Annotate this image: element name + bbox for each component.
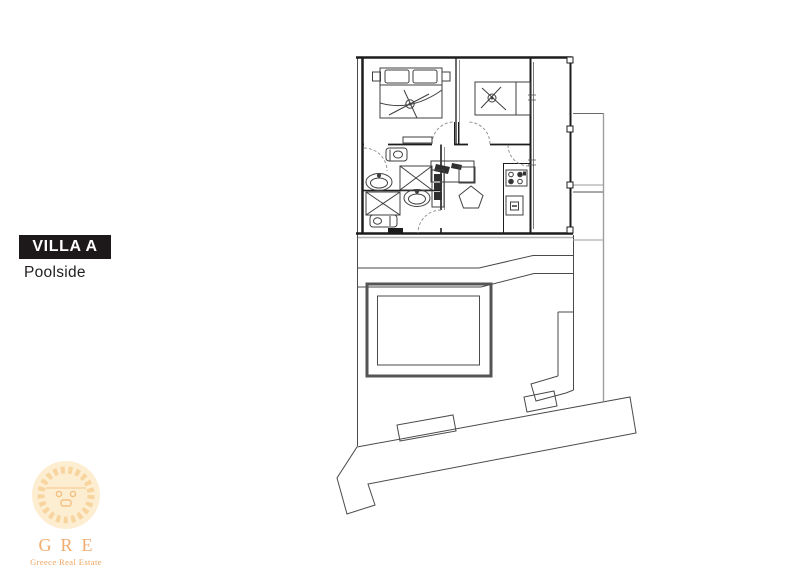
driveway	[337, 391, 636, 514]
door-arcs	[364, 122, 529, 233]
pillow	[413, 70, 437, 83]
pillow	[385, 70, 409, 83]
toilet	[386, 148, 407, 161]
side-terrace	[573, 114, 603, 241]
bedroom-2	[475, 82, 530, 115]
agency-logo: GRE Greece Real Estate	[20, 458, 112, 567]
side-table	[459, 186, 483, 208]
door-mat	[388, 228, 403, 234]
bathroom-2	[366, 190, 430, 234]
nightstand	[442, 72, 450, 81]
bed-2	[475, 82, 530, 115]
logo-monogram: GRE	[28, 535, 112, 556]
bedroom-1	[373, 68, 451, 143]
logo-tagline: Greece Real Estate	[20, 557, 112, 567]
pool	[367, 284, 491, 376]
dresser	[403, 137, 432, 143]
sun-logo-icon	[28, 458, 104, 534]
villa-title: VILLA A	[19, 235, 111, 259]
living-kitchen	[431, 161, 527, 215]
building-walls	[356, 57, 573, 238]
bathroom-1	[366, 148, 432, 191]
villa-subtitle: Poolside	[19, 264, 111, 282]
table	[459, 167, 475, 183]
floor-plan-drawing	[0, 0, 800, 565]
plan-label: VILLA A Poolside	[19, 235, 111, 282]
bed-1	[380, 68, 442, 118]
nightstand	[373, 72, 381, 81]
toilet	[370, 215, 397, 227]
